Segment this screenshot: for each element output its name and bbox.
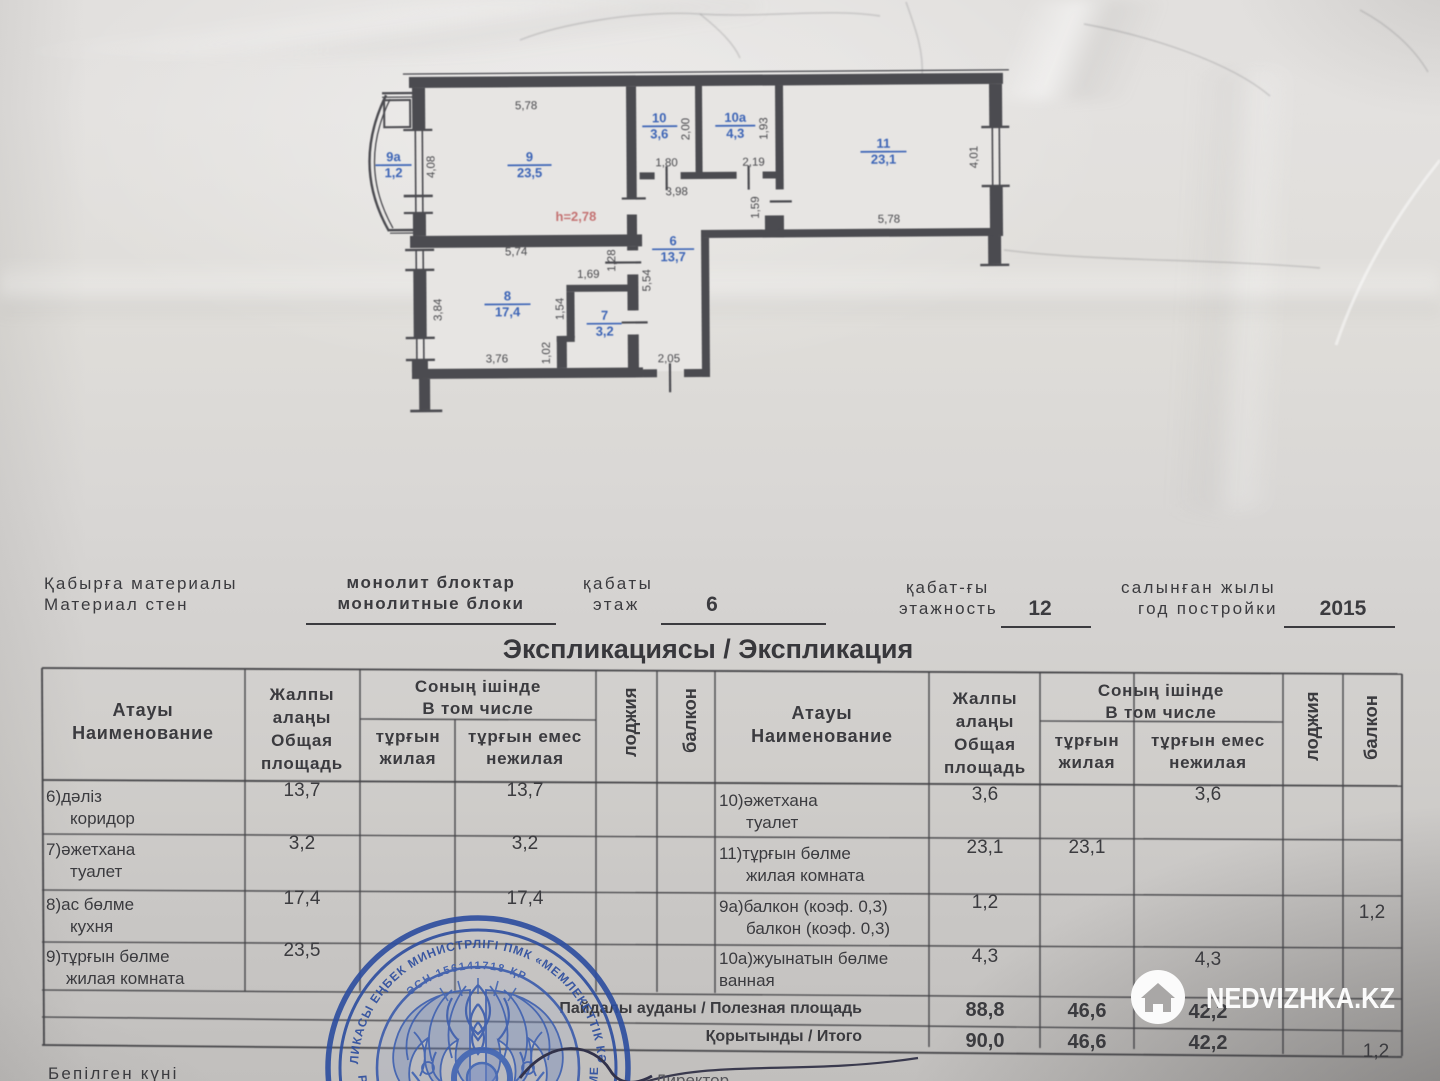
svg-text:NEDVIZHKA.KZ: NEDVIZHKA.KZ xyxy=(1206,983,1395,1015)
